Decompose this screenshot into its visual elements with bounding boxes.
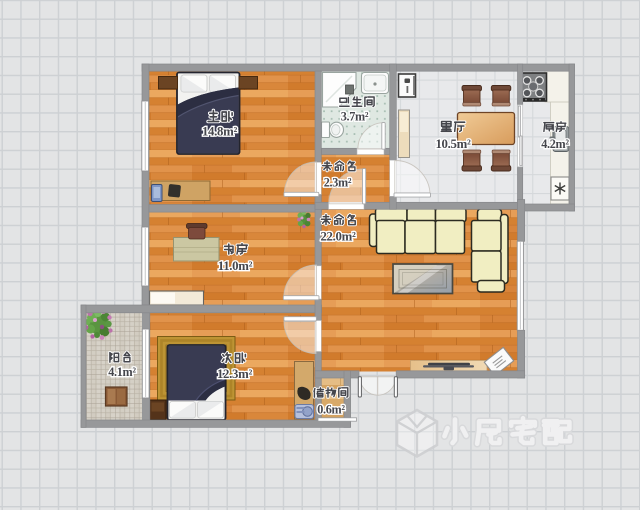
svg-text:2.3m²: 2.3m² xyxy=(324,175,352,189)
svg-text:10.5m²: 10.5m² xyxy=(435,137,471,151)
svg-text:12.3m²: 12.3m² xyxy=(217,367,253,381)
svg-text:4.1m²: 4.1m² xyxy=(108,365,136,379)
svg-text:4.2m²: 4.2m² xyxy=(541,137,569,151)
svg-text:0.6m²: 0.6m² xyxy=(317,402,345,416)
svg-text:11.0m²: 11.0m² xyxy=(218,259,253,273)
svg-text:14.8m²: 14.8m² xyxy=(202,125,238,139)
svg-text:3.7m²: 3.7m² xyxy=(341,109,369,123)
svg-text:22.0m²: 22.0m² xyxy=(320,230,356,244)
